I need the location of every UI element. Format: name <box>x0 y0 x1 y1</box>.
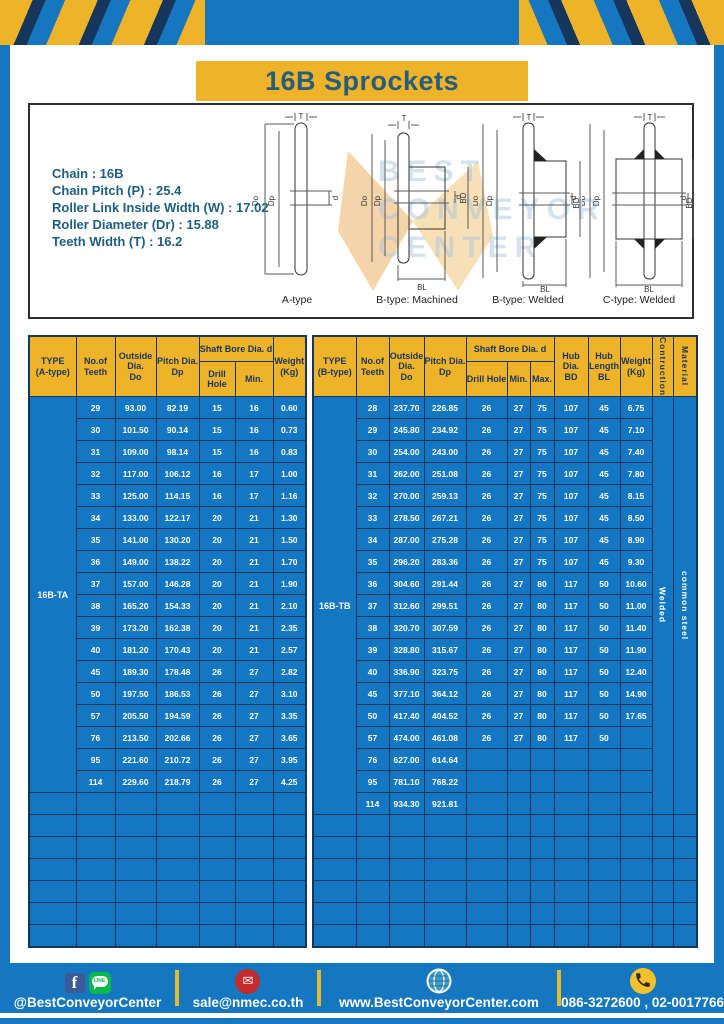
table-cell: 27 <box>507 661 530 683</box>
b-welded-diagram: T Do Dp d BD BL <box>473 111 583 293</box>
empty-cell <box>507 925 530 948</box>
table-cell: 82.19 <box>156 397 199 419</box>
table-cell: 57 <box>76 705 115 727</box>
table-cell: 296.20 <box>389 551 424 573</box>
table-cell: 75 <box>530 551 554 573</box>
empty-cell <box>673 881 697 903</box>
phone-numbers: 086-3272600 , 02-0017766 <box>561 995 724 1010</box>
table-cell: 27 <box>507 529 530 551</box>
empty-cell <box>620 859 652 881</box>
table-cell: 107 <box>554 441 588 463</box>
page-title: 16B Sprockets <box>265 66 459 97</box>
table-cell: 28 <box>356 397 389 419</box>
empty-cell <box>313 815 356 837</box>
empty-cell <box>76 815 115 837</box>
empty-cell <box>156 793 199 815</box>
table-cell: 57 <box>356 727 389 749</box>
col-header-drill-hole: Drill Hole <box>199 362 235 397</box>
data-row: 31262.00251.08262775107457.80 <box>313 463 697 485</box>
table-cell: 2.10 <box>273 595 306 617</box>
data-row: 35296.20283.36262775107459.30 <box>313 551 697 573</box>
svg-text:d: d <box>331 196 340 200</box>
empty-row <box>313 837 697 859</box>
table-cell: 29 <box>76 397 115 419</box>
table-cell: 31 <box>356 463 389 485</box>
empty-cell <box>156 859 199 881</box>
empty-cell <box>389 837 424 859</box>
type-cell: 16B-TB <box>313 397 356 815</box>
empty-cell <box>29 925 76 948</box>
data-row: 38320.70307.592627801175011.40 <box>313 617 697 639</box>
empty-cell <box>76 925 115 948</box>
drawing-b-welded: T Do Dp d BD BL B-type: Welded <box>472 111 584 306</box>
table-cell: 7.80 <box>620 463 652 485</box>
b-type-table-wrap: TYPE (B-type) No.of Teeth Outside Dia. D… <box>312 335 698 948</box>
table-cell: 16 <box>235 419 273 441</box>
table-cell: 11.00 <box>620 595 652 617</box>
table-cell: 1.00 <box>273 463 306 485</box>
empty-cell <box>507 859 530 881</box>
empty-cell <box>356 925 389 948</box>
table-cell: 218.79 <box>156 771 199 793</box>
empty-cell <box>356 903 389 925</box>
empty-row <box>29 881 306 903</box>
table-cell <box>530 793 554 815</box>
empty-cell <box>313 903 356 925</box>
empty-cell <box>235 837 273 859</box>
table-cell: 107 <box>554 419 588 441</box>
table-cell: 30 <box>76 419 115 441</box>
empty-cell <box>588 881 620 903</box>
table-cell: 234.92 <box>424 419 466 441</box>
table-cell: 33 <box>76 485 115 507</box>
table-cell: 2.82 <box>273 661 306 683</box>
table-cell: 26 <box>466 419 507 441</box>
empty-cell <box>235 793 273 815</box>
table-cell: 38 <box>76 595 115 617</box>
table-cell: 117 <box>554 705 588 727</box>
top-hazard-band <box>0 0 724 45</box>
table-cell <box>530 771 554 793</box>
empty-cell <box>554 859 588 881</box>
svg-text:BD: BD <box>572 197 581 208</box>
page-body: 16B Sprockets BEST CONVEYOR CENTER Chain… <box>10 45 714 1013</box>
svg-text:T: T <box>401 114 406 123</box>
empty-cell <box>554 881 588 903</box>
empty-cell <box>156 925 199 948</box>
table-cell: 16 <box>199 485 235 507</box>
empty-cell <box>424 881 466 903</box>
table-cell: 254.00 <box>389 441 424 463</box>
table-cell: 32 <box>356 485 389 507</box>
table-cell: 299.51 <box>424 595 466 617</box>
svg-text:Do: Do <box>582 195 587 206</box>
empty-cell <box>273 793 306 815</box>
table-cell: 26 <box>466 595 507 617</box>
table-cell: 26 <box>199 771 235 793</box>
table-cell <box>554 749 588 771</box>
empty-cell <box>389 881 424 903</box>
table-cell: 27 <box>507 617 530 639</box>
empty-cell <box>313 837 356 859</box>
table-cell: 11.40 <box>620 617 652 639</box>
table-cell: 2.57 <box>273 639 306 661</box>
table-cell: 275.28 <box>424 529 466 551</box>
empty-cell <box>554 903 588 925</box>
empty-cell <box>115 793 156 815</box>
empty-cell <box>424 903 466 925</box>
table-cell: 197.50 <box>115 683 156 705</box>
table-cell: 26 <box>466 551 507 573</box>
spec-line: Roller Link Inside Width (W) : 17.02 <box>52 199 269 216</box>
empty-row <box>313 925 697 948</box>
table-cell: 45 <box>588 507 620 529</box>
empty-cell <box>673 859 697 881</box>
table-cell: 0.73 <box>273 419 306 441</box>
table-cell <box>530 749 554 771</box>
table-cell: 149.00 <box>115 551 156 573</box>
table-cell <box>466 771 507 793</box>
empty-cell <box>313 859 356 881</box>
empty-cell <box>652 881 673 903</box>
empty-cell <box>29 859 76 881</box>
table-cell: 107 <box>554 463 588 485</box>
table-cell: 26 <box>466 705 507 727</box>
table-cell: 12.40 <box>620 661 652 683</box>
table-cell: 768.22 <box>424 771 466 793</box>
table-cell: 173.20 <box>115 617 156 639</box>
empty-cell <box>235 881 273 903</box>
table-cell: 80 <box>530 683 554 705</box>
table-cell: 29 <box>356 419 389 441</box>
table-cell: 189.30 <box>115 661 156 683</box>
table-cell: 474.00 <box>389 727 424 749</box>
table-cell: 50 <box>588 639 620 661</box>
empty-cell <box>466 925 507 948</box>
table-cell: 27 <box>507 441 530 463</box>
empty-cell <box>673 925 697 948</box>
table-cell: 27 <box>507 507 530 529</box>
spec-line: Chain : 16B <box>52 165 269 182</box>
table-cell: 291.44 <box>424 573 466 595</box>
table-cell: 461.08 <box>424 727 466 749</box>
svg-text:T: T <box>527 113 532 122</box>
table-cell: 117.00 <box>115 463 156 485</box>
empty-cell <box>588 925 620 948</box>
table-cell: 26 <box>466 573 507 595</box>
svg-text:BD: BD <box>459 192 468 203</box>
table-cell <box>554 771 588 793</box>
hazard-stripes-right <box>519 0 724 45</box>
table-cell <box>620 749 652 771</box>
col-header-drill-hole: Drill Hole <box>466 362 507 397</box>
drawing-caption: C-type: Welded <box>582 294 696 306</box>
svg-text:Dp: Dp <box>485 195 494 206</box>
table-cell: 27 <box>507 595 530 617</box>
table-cell <box>588 749 620 771</box>
empty-cell <box>588 815 620 837</box>
table-cell: 26 <box>466 683 507 705</box>
table-cell: 229.60 <box>115 771 156 793</box>
table-cell: 26 <box>466 507 507 529</box>
table-cell <box>507 793 530 815</box>
drawing-caption: B-type: Machined <box>358 294 476 306</box>
table-cell <box>554 793 588 815</box>
table-cell: 20 <box>199 595 235 617</box>
empty-cell <box>588 903 620 925</box>
data-row: 45377.10364.122627801175014.90 <box>313 683 697 705</box>
email-address: sale@nmec.co.th <box>193 995 304 1010</box>
table-cell: 202.66 <box>156 727 199 749</box>
col-header-outside-dia: Outside Dia. Do <box>115 336 156 397</box>
table-cell: 27 <box>507 419 530 441</box>
table-cell: 117 <box>554 683 588 705</box>
table-cell: 26 <box>466 441 507 463</box>
empty-cell <box>424 815 466 837</box>
empty-cell <box>235 815 273 837</box>
table-cell: 165.20 <box>115 595 156 617</box>
empty-cell <box>29 793 76 815</box>
table-cell: 27 <box>507 397 530 419</box>
spec-box: BEST CONVEYOR CENTER Chain : 16B Chain P… <box>28 103 694 319</box>
table-cell: 307.59 <box>424 617 466 639</box>
empty-cell <box>115 903 156 925</box>
footer-contact-band: f LINE @BestConveyorCenter ✉ sale@nmec.c… <box>0 963 724 1013</box>
globe-icon <box>426 968 452 994</box>
svg-text:Do: Do <box>473 195 480 206</box>
table-cell: 267.21 <box>424 507 466 529</box>
empty-cell <box>115 859 156 881</box>
table-cell: 106.12 <box>156 463 199 485</box>
table-cell: 1.70 <box>273 551 306 573</box>
table-cell: 146.28 <box>156 573 199 595</box>
empty-cell <box>466 859 507 881</box>
data-row: 33278.50267.21262775107458.50 <box>313 507 697 529</box>
table-cell <box>466 793 507 815</box>
empty-cell <box>313 925 356 948</box>
table-cell: 26 <box>466 639 507 661</box>
table-cell: 21 <box>235 617 273 639</box>
title-banner: 16B Sprockets <box>196 61 528 101</box>
svg-text:T: T <box>298 112 303 121</box>
type-cell: 16B-TA <box>29 397 76 793</box>
table-cell: 27 <box>235 683 273 705</box>
table-cell: 45 <box>588 463 620 485</box>
svg-text:BL: BL <box>540 285 550 293</box>
empty-cell <box>235 925 273 948</box>
data-row: 16B-TB28237.70226.85262775107456.75Welde… <box>313 397 697 419</box>
table-cell: 27 <box>507 727 530 749</box>
table-cell: 107 <box>554 551 588 573</box>
empty-cell <box>115 837 156 859</box>
empty-cell <box>652 903 673 925</box>
data-row: 37312.60299.512627801175011.00 <box>313 595 697 617</box>
empty-cell <box>507 837 530 859</box>
table-cell: 315.67 <box>424 639 466 661</box>
svg-text:BD: BD <box>685 197 694 208</box>
empty-cell <box>620 881 652 903</box>
table-cell: 364.12 <box>424 683 466 705</box>
empty-cell <box>554 837 588 859</box>
spec-line: Roller Diameter (Dr) : 15.88 <box>52 216 269 233</box>
empty-cell <box>199 925 235 948</box>
empty-cell <box>530 925 554 948</box>
empty-cell <box>530 859 554 881</box>
table-cell: 75 <box>530 419 554 441</box>
col-header-teeth: No.of Teeth <box>76 336 115 397</box>
col-header-pitch-dia: Pitch Dia. Dp <box>424 336 466 397</box>
table-cell: 26 <box>466 661 507 683</box>
table-cell: 93.00 <box>115 397 156 419</box>
empty-cell <box>29 815 76 837</box>
table-cell: 21 <box>235 573 273 595</box>
col-header-max: Max. <box>530 362 554 397</box>
table-cell: 213.50 <box>115 727 156 749</box>
empty-cell <box>273 859 306 881</box>
b-type-table: TYPE (B-type) No.of Teeth Outside Dia. D… <box>312 335 698 948</box>
col-header-pitch-dia: Pitch Dia. Dp <box>156 336 199 397</box>
table-cell: 50 <box>588 683 620 705</box>
data-row: 16B-TA2993.0082.1915160.60 <box>29 397 306 419</box>
table-cell: 0.83 <box>273 441 306 463</box>
table-cell: 9.30 <box>620 551 652 573</box>
table-cell: 26 <box>466 397 507 419</box>
empty-cell <box>652 925 673 948</box>
table-cell: 34 <box>356 529 389 551</box>
line-icon: LINE <box>89 972 111 994</box>
data-row: 50417.40404.522627801175017.65 <box>313 705 697 727</box>
a-type-table-wrap: TYPE (A-type) No.of Teeth Outside Dia. D… <box>28 335 307 948</box>
empty-cell <box>466 903 507 925</box>
empty-cell <box>156 903 199 925</box>
empty-row <box>313 881 697 903</box>
table-cell <box>507 771 530 793</box>
table-cell: 107 <box>554 485 588 507</box>
empty-cell <box>507 815 530 837</box>
table-cell: 50 <box>588 573 620 595</box>
table-cell: 114 <box>76 771 115 793</box>
table-cell: 20 <box>199 529 235 551</box>
empty-cell <box>389 925 424 948</box>
empty-cell <box>76 903 115 925</box>
empty-cell <box>673 903 697 925</box>
data-row: 39328.80315.672627801175011.90 <box>313 639 697 661</box>
table-cell: 251.08 <box>424 463 466 485</box>
table-cell: 157.00 <box>115 573 156 595</box>
empty-cell <box>530 903 554 925</box>
data-row: 95781.10768.22 <box>313 771 697 793</box>
col-header-weight: Weight (Kg) <box>620 336 652 397</box>
table-cell: 114.15 <box>156 485 199 507</box>
empty-cell <box>76 793 115 815</box>
table-cell: 27 <box>507 705 530 727</box>
empty-row <box>313 903 697 925</box>
col-header-hub-dia: Hub Dia. BD <box>554 336 588 397</box>
col-header-hub-length: Hub Length BL <box>588 336 620 397</box>
table-cell: 181.20 <box>115 639 156 661</box>
spec-line: Chain Pitch (P) : 25.4 <box>52 182 269 199</box>
table-cell: 26 <box>466 617 507 639</box>
empty-cell <box>356 815 389 837</box>
table-cell: 80 <box>530 573 554 595</box>
empty-cell <box>356 859 389 881</box>
table-cell: 26 <box>466 485 507 507</box>
table-cell: 0.60 <box>273 397 306 419</box>
table-cell: 10.60 <box>620 573 652 595</box>
table-cell: 21 <box>235 639 273 661</box>
table-cell: 141.00 <box>115 529 156 551</box>
table-cell: 26 <box>199 727 235 749</box>
empty-cell <box>389 859 424 881</box>
empty-cell <box>424 837 466 859</box>
table-cell: 109.00 <box>115 441 156 463</box>
table-cell: 278.50 <box>389 507 424 529</box>
table-cell: 133.00 <box>115 507 156 529</box>
b-machined-diagram: T Do Dp d BD BL <box>360 111 475 293</box>
table-cell: 26 <box>199 683 235 705</box>
col-header-shaft-bore: Shaft Bore Dia. d <box>466 336 554 362</box>
table-cell: 130.20 <box>156 529 199 551</box>
table-cell: 21 <box>235 551 273 573</box>
empty-cell <box>652 815 673 837</box>
empty-cell <box>273 903 306 925</box>
table-cell: 262.00 <box>389 463 424 485</box>
empty-cell <box>273 837 306 859</box>
empty-cell <box>620 925 652 948</box>
table-cell: 17 <box>235 463 273 485</box>
table-cell: 50 <box>588 617 620 639</box>
table-cell: 138.22 <box>156 551 199 573</box>
data-row: 57474.00461.0826278011750 <box>313 727 697 749</box>
empty-cell <box>620 903 652 925</box>
table-cell: 27 <box>235 749 273 771</box>
empty-cell <box>588 859 620 881</box>
svg-text:Do: Do <box>360 195 369 206</box>
empty-cell <box>554 815 588 837</box>
table-cell <box>507 749 530 771</box>
table-cell: 14.90 <box>620 683 652 705</box>
table-cell: 20 <box>199 507 235 529</box>
table-cell: 170.43 <box>156 639 199 661</box>
table-cell: 75 <box>530 529 554 551</box>
material-cell: common steel <box>673 397 697 815</box>
table-cell: 35 <box>76 529 115 551</box>
data-row: 34287.00275.28262775107458.90 <box>313 529 697 551</box>
footer-website-section: www.BestConveyorCenter.com <box>321 963 557 1013</box>
drawing-c-welded: T Do Dp d BD BL C-type: Welded <box>582 111 696 306</box>
drawing-caption: A-type <box>242 294 352 306</box>
table-cell: 36 <box>76 551 115 573</box>
col-header-material: Material <box>673 336 697 397</box>
table-cell: 26 <box>199 661 235 683</box>
table-cell: 107 <box>554 397 588 419</box>
table-cell: 30 <box>356 441 389 463</box>
table-cell: 27 <box>235 771 273 793</box>
table-cell: 237.70 <box>389 397 424 419</box>
table-cell: 16 <box>235 397 273 419</box>
table-cell: 283.36 <box>424 551 466 573</box>
empty-row <box>29 815 306 837</box>
table-cell: 287.00 <box>389 529 424 551</box>
table-cell: 26 <box>466 529 507 551</box>
table-cell: 15 <box>199 419 235 441</box>
table-cell: 40 <box>76 639 115 661</box>
table-cell: 26 <box>466 727 507 749</box>
table-cell: 781.10 <box>389 771 424 793</box>
table-cell: 90.14 <box>156 419 199 441</box>
empty-cell <box>554 925 588 948</box>
empty-cell <box>356 837 389 859</box>
